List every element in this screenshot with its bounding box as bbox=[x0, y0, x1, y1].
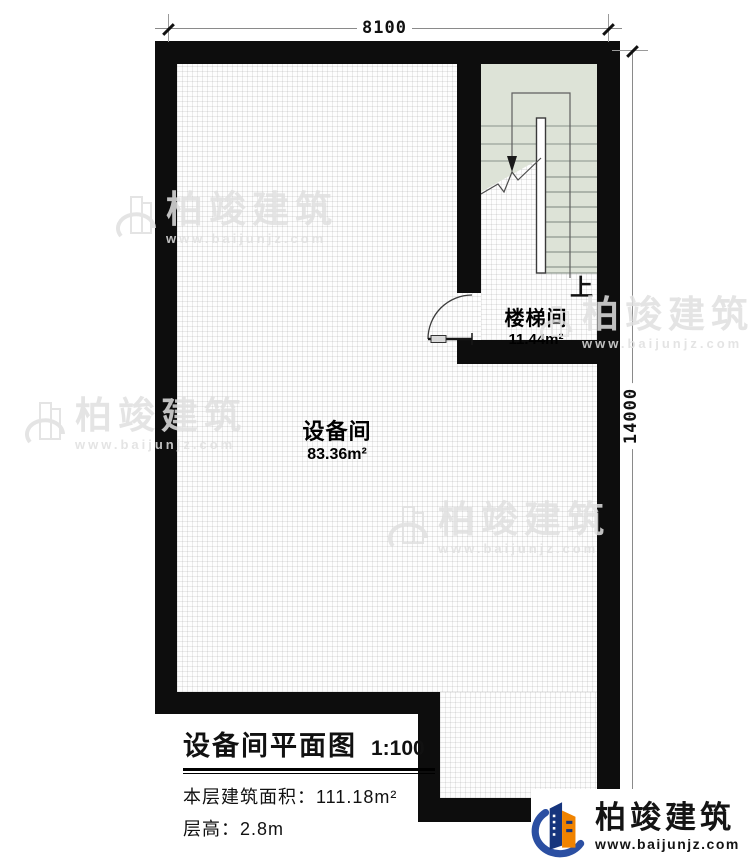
area-label: 本层建筑面积： bbox=[183, 787, 316, 807]
floor-height-value: 2.8m bbox=[240, 819, 284, 839]
floor-height-line: 层高：2.8m bbox=[183, 815, 435, 841]
plan-scale: 1:100 bbox=[371, 737, 425, 761]
floor-height-label: 层高： bbox=[183, 819, 240, 839]
room-area: 83.36m² bbox=[262, 446, 412, 464]
door-arc bbox=[428, 295, 472, 339]
door-handle bbox=[431, 336, 446, 343]
room-name: 设备间 bbox=[262, 414, 412, 446]
stair-rail bbox=[537, 118, 546, 273]
wall-stairwell-left bbox=[457, 64, 481, 293]
room-area: 11.44m² bbox=[480, 331, 592, 348]
dimension-label-height: 14000 bbox=[621, 383, 641, 449]
dimension-label-width: 8100 bbox=[357, 18, 412, 38]
floor-plan-canvas: 8100 14000 bbox=[0, 0, 750, 865]
company-logo-brand: 柏竣建筑 bbox=[595, 802, 740, 835]
watermark-logo-icon bbox=[116, 190, 158, 246]
stair-up-label: 上 bbox=[570, 268, 593, 302]
plan-title-row: 设备间平面图 1:100 bbox=[183, 724, 435, 771]
room-name: 楼梯间 bbox=[480, 302, 592, 331]
door-swing bbox=[418, 288, 488, 348]
watermark-logo-icon bbox=[25, 396, 67, 452]
company-logo-url: www.baijunjz.com bbox=[595, 836, 740, 852]
company-logo: 柏竣建筑 www.baijunjz.com bbox=[531, 789, 750, 865]
plan-title: 设备间平面图 bbox=[183, 724, 357, 763]
room-label-stairwell: 楼梯间 11.44m² bbox=[480, 302, 592, 348]
area-line: 本层建筑面积：111.18m² bbox=[183, 783, 435, 809]
floor-equipment-room-tab bbox=[440, 692, 597, 798]
title-block: 设备间平面图 1:100 本层建筑面积：111.18m² 层高：2.8m bbox=[183, 724, 435, 841]
company-logo-icon bbox=[531, 794, 589, 860]
area-value: 111.18m² bbox=[316, 787, 397, 807]
room-label-equipment: 设备间 83.36m² bbox=[262, 414, 412, 464]
